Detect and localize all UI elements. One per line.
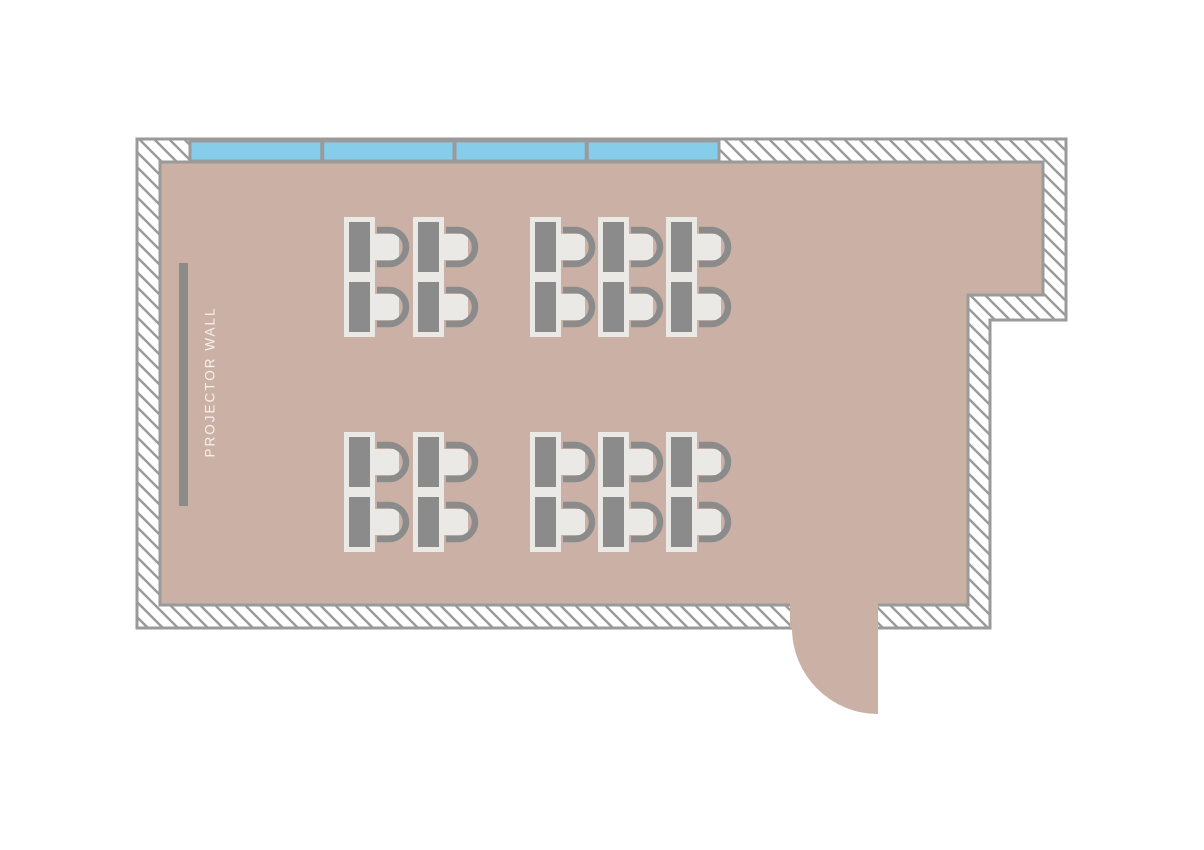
projector-screen: [179, 263, 188, 506]
desk-top: [349, 497, 370, 547]
desk-top: [671, 222, 692, 272]
desk-top: [603, 437, 624, 487]
desk-top: [349, 222, 370, 272]
chair-seat: [444, 294, 468, 320]
chair-seat: [444, 509, 468, 535]
window-band: [190, 141, 719, 161]
desk-top: [603, 497, 624, 547]
chair-seat: [697, 234, 721, 260]
desk-top: [535, 437, 556, 487]
desk-top: [671, 437, 692, 487]
desk-top: [349, 437, 370, 487]
chair-seat: [561, 294, 585, 320]
desk-top: [671, 282, 692, 332]
chair-seat: [375, 294, 399, 320]
desk-top: [418, 222, 439, 272]
chair-seat: [629, 294, 653, 320]
chair-seat: [629, 449, 653, 475]
chair-seat: [697, 294, 721, 320]
desk-top: [603, 282, 624, 332]
chair-seat: [444, 449, 468, 475]
desk-top: [418, 282, 439, 332]
desk-top: [418, 437, 439, 487]
desk-top: [418, 497, 439, 547]
chair-seat: [561, 509, 585, 535]
desk-top: [535, 282, 556, 332]
desk-top: [671, 497, 692, 547]
chair-seat: [629, 509, 653, 535]
chair-seat: [697, 449, 721, 475]
floor-plan-canvas: PROJECTOR WALL: [0, 0, 1204, 850]
chair-seat: [375, 449, 399, 475]
chair-seat: [697, 509, 721, 535]
chair-seat: [561, 234, 585, 260]
desk-top: [535, 222, 556, 272]
floor-plan-page: PROJECTOR WALL: [0, 0, 1204, 850]
desk-top: [349, 282, 370, 332]
chair-seat: [375, 234, 399, 260]
chair-seat: [375, 509, 399, 535]
chair-seat: [561, 449, 585, 475]
desk-top: [535, 497, 556, 547]
door-swing: [790, 602, 878, 714]
desk-top: [603, 222, 624, 272]
chair-seat: [444, 234, 468, 260]
projector-wall-label: PROJECTOR WALL: [203, 306, 218, 457]
chair-seat: [629, 234, 653, 260]
